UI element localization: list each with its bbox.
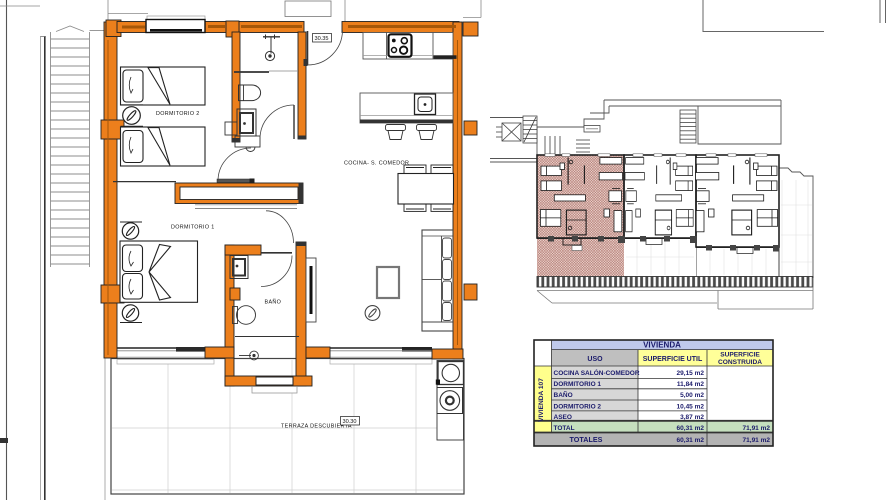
svg-text:30.30: 30.30 xyxy=(343,419,357,425)
svg-text:5,00 m2: 5,00 m2 xyxy=(680,392,704,399)
svg-text:71,91 m2: 71,91 m2 xyxy=(743,437,771,444)
svg-text:60,31 m2: 60,31 m2 xyxy=(677,425,705,432)
svg-text:COCINA SALÓN-COMEDOR: COCINA SALÓN-COMEDOR xyxy=(554,368,640,377)
svg-text:USO: USO xyxy=(587,356,603,363)
svg-text:10,45 m2: 10,45 m2 xyxy=(677,404,705,411)
svg-text:BAÑO: BAÑO xyxy=(554,390,573,399)
svg-text:DORMITORIO 1: DORMITORIO 1 xyxy=(554,381,602,388)
svg-text:CONSTRUIDA: CONSTRUIDA xyxy=(718,359,762,366)
svg-text:DORMITORIO 1: DORMITORIO 1 xyxy=(171,224,215,230)
svg-text:30.35: 30.35 xyxy=(315,36,329,42)
svg-text:3,87 m2: 3,87 m2 xyxy=(680,414,704,421)
svg-text:29,15 m2: 29,15 m2 xyxy=(677,370,705,377)
svg-text:TOTAL: TOTAL xyxy=(554,425,575,432)
svg-text:SUPERFICIE: SUPERFICIE xyxy=(720,352,760,359)
svg-text:11,84 m2: 11,84 m2 xyxy=(677,381,704,388)
svg-text:DORMITORIO 2: DORMITORIO 2 xyxy=(554,404,602,411)
svg-text:60,31 m2: 60,31 m2 xyxy=(677,437,705,444)
svg-text:71,91 m2: 71,91 m2 xyxy=(743,425,771,432)
svg-text:SUPERFICIE UTIL: SUPERFICIE UTIL xyxy=(643,356,703,363)
svg-text:DORMITORIO 2: DORMITORIO 2 xyxy=(156,111,200,117)
svg-text:VIVIENDA: VIVIENDA xyxy=(643,341,681,350)
svg-text:COCINA- S. COMEDOR: COCINA- S. COMEDOR xyxy=(344,160,409,166)
svg-text:BAÑO: BAÑO xyxy=(265,299,282,306)
svg-text:ASEO: ASEO xyxy=(554,414,572,421)
svg-text:VIVIENDA 107: VIVIENDA 107 xyxy=(538,378,545,422)
svg-text:TOTALES: TOTALES xyxy=(570,435,603,444)
